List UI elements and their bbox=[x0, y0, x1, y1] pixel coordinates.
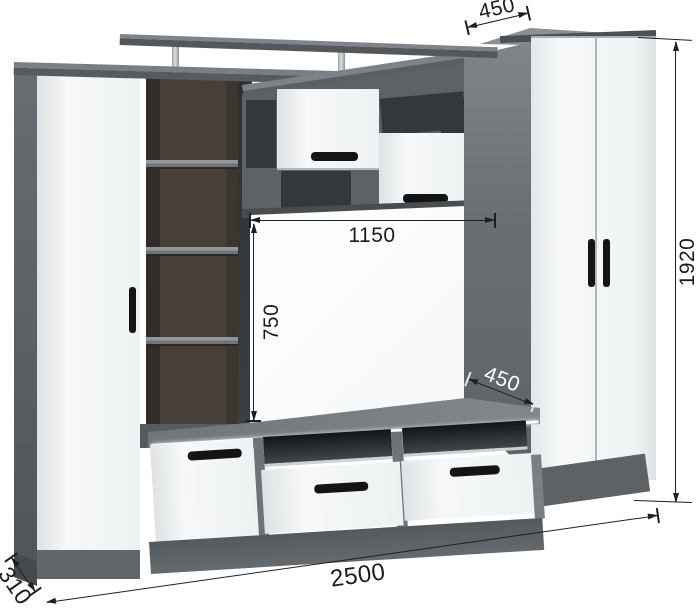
tv-stand-open-niche-1 bbox=[263, 429, 393, 467]
tv-stand-door bbox=[150, 439, 259, 547]
shelf-column-shelf-3 bbox=[146, 337, 239, 346]
tv-stand-drawer-2 bbox=[401, 453, 535, 521]
dim-label-niche-height: 750 bbox=[260, 304, 284, 341]
extension-tick bbox=[656, 508, 660, 523]
shelf-column-shelf-2 bbox=[146, 247, 239, 256]
tv-stand-drawer-1-handle bbox=[314, 481, 368, 493]
wall-unit-open-box-bottom bbox=[281, 171, 351, 209]
wardrobe-door-gap bbox=[595, 38, 597, 480]
tv-stand-drawer-2-handle bbox=[450, 465, 500, 477]
extension-tick bbox=[246, 420, 261, 422]
arrow-start-icon bbox=[252, 223, 258, 233]
left-cabinet-door bbox=[37, 72, 140, 550]
arrow-start-icon bbox=[674, 41, 680, 51]
left-cabinet-handle bbox=[129, 287, 136, 333]
dim-ext-line-height-bottom bbox=[634, 500, 692, 503]
left-cabinet-side-panel bbox=[14, 68, 37, 580]
extension-tick bbox=[249, 213, 251, 228]
arrow-start-icon bbox=[46, 597, 57, 604]
shelf-column-shelf-1 bbox=[146, 160, 239, 169]
wardrobe-handle-left bbox=[588, 239, 595, 287]
left-cabinet-plinth bbox=[37, 550, 140, 579]
dim-label-overall-width: 2500 bbox=[329, 558, 388, 593]
wall-unit-open-box-left bbox=[246, 100, 276, 168]
extension-tick bbox=[494, 213, 496, 228]
furniture-dimension-diagram: 450 1920 1150 750 450 2500 bbox=[0, 0, 700, 614]
arrow-start-icon bbox=[250, 217, 260, 223]
wall-unit-flap-door-left-handle bbox=[311, 152, 358, 161]
wardrobe-handle-right bbox=[603, 239, 610, 287]
dim-label-overall-height: 1920 bbox=[676, 238, 700, 287]
dim-label-niche-width: 1150 bbox=[348, 224, 395, 248]
extension-tick bbox=[526, 6, 531, 21]
dim-line-niche-height bbox=[253, 224, 254, 420]
dim-line-niche-width bbox=[251, 220, 494, 221]
arrow-end-icon bbox=[674, 493, 680, 503]
dim-label-top-depth: 450 bbox=[476, 0, 517, 25]
tv-stand-drawer-1 bbox=[261, 462, 404, 534]
tv-stand-door-handle bbox=[187, 448, 241, 460]
